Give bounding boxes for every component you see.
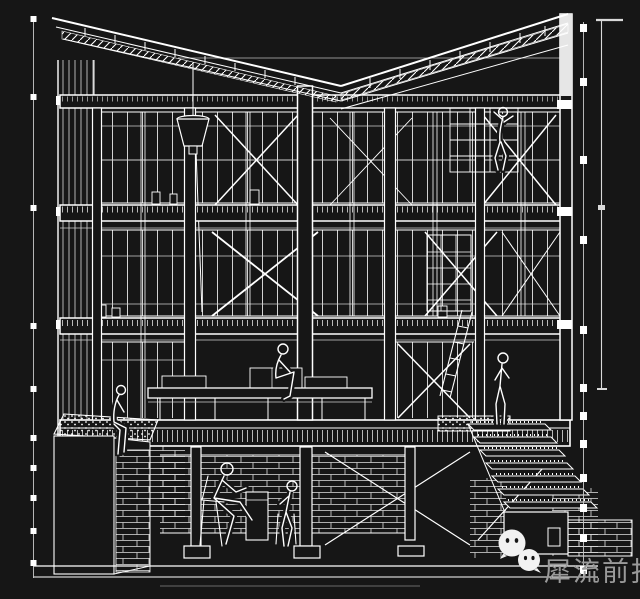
gravel-planter-box [54, 414, 158, 574]
screenshot-root: 犀流前报 [0, 0, 640, 599]
watermark-label: 犀流前报 [544, 550, 640, 589]
watermark: 犀流前报 [492, 524, 640, 588]
wechat-icon-small [518, 549, 541, 573]
section-perspective-drawing [0, 0, 640, 599]
wechat-icons [492, 524, 544, 576]
right-wall-column [557, 14, 572, 420]
